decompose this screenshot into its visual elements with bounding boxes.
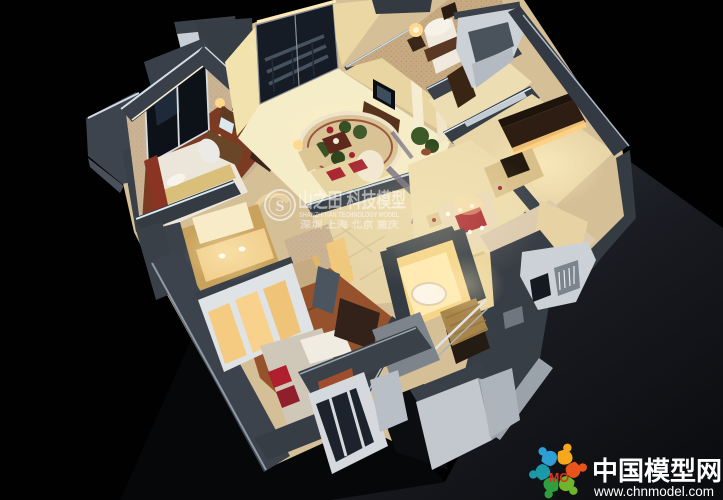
svg-text:MO: MO: [549, 471, 569, 485]
svg-text:深圳 上海 北京 重庆: 深圳 上海 北京 重庆: [300, 219, 400, 231]
svg-text:中国模型网: 中国模型网: [592, 456, 722, 486]
svg-text:SHANZHITIAN TECHNOLOGY MODEL: SHANZHITIAN TECHNOLOGY MODEL: [299, 210, 399, 219]
svg-text:S: S: [276, 198, 285, 215]
svg-text:www.chnmodel.com: www.chnmodel.com: [593, 484, 714, 499]
svg-text:山之田 科技模型: 山之田 科技模型: [298, 188, 406, 212]
